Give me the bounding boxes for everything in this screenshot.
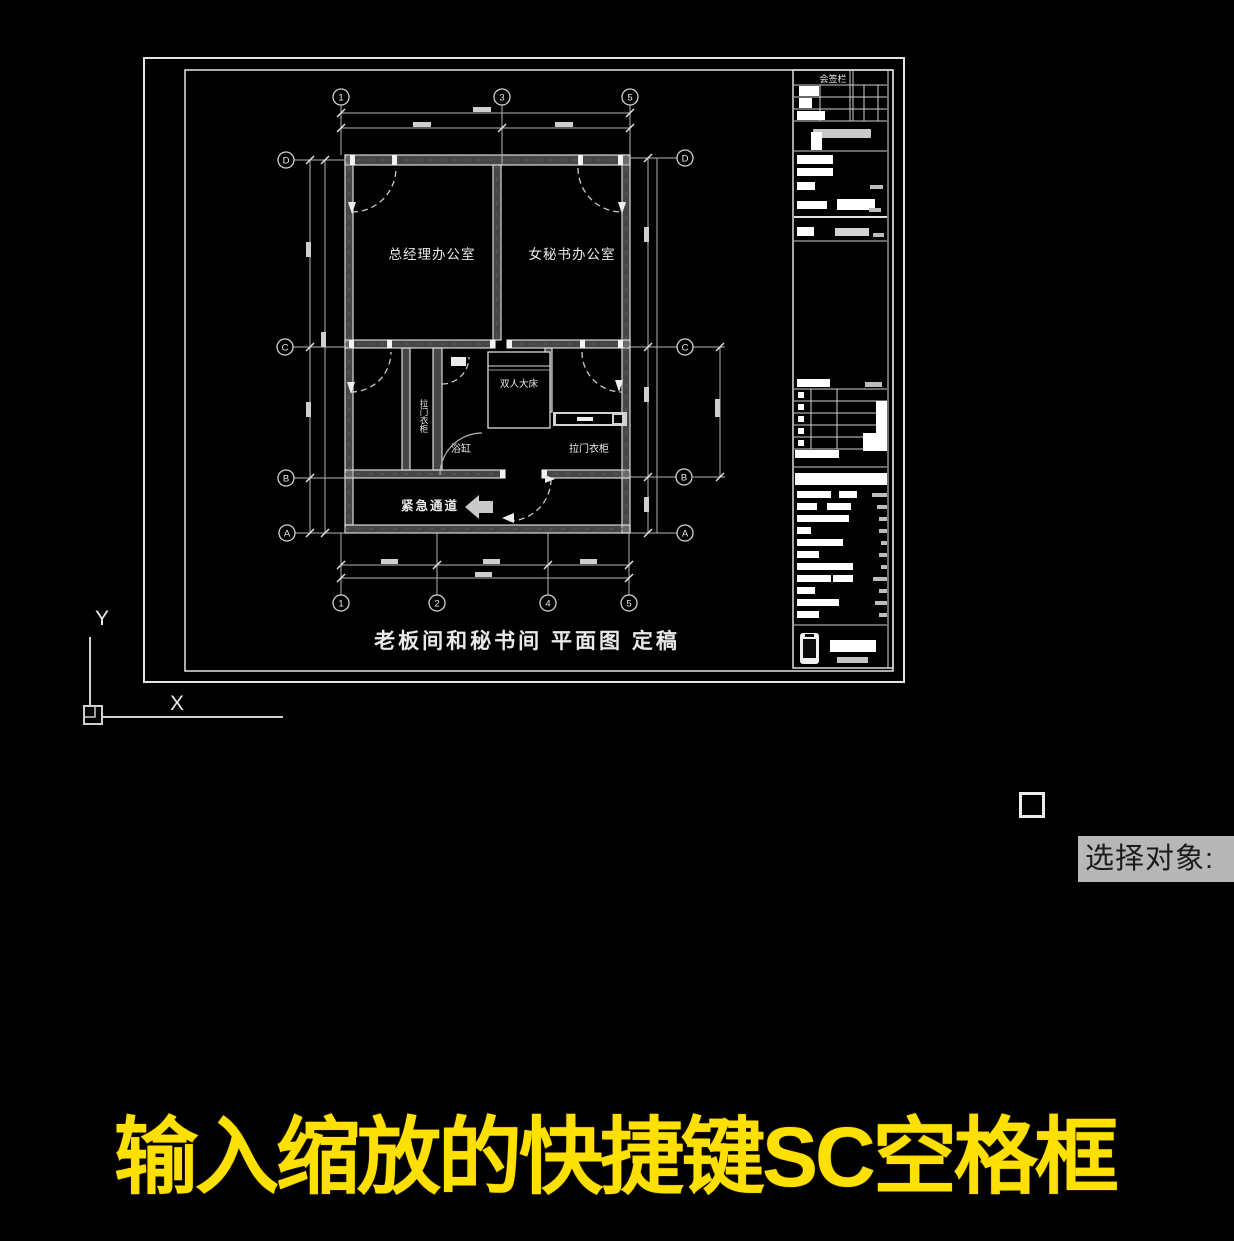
grid-bubble: B: [278, 470, 294, 486]
grid-bubble: A: [677, 525, 693, 541]
emergency-arrow-icon: [465, 495, 493, 519]
svg-text:D: D: [283, 156, 290, 167]
video-caption: 输入缩放的快捷键SC空格框: [114, 1090, 1116, 1211]
label-bathtub: 浴缸: [451, 442, 471, 455]
label-wardrobe-side: 拉门衣柜: [419, 398, 429, 434]
cad-viewport[interactable]: 会签栏: [0, 0, 1234, 1241]
grid-bubble: B: [676, 469, 692, 485]
label-emergency-passage: 紧急通道: [401, 498, 459, 513]
title-block: 会签栏: [793, 70, 893, 668]
grid-bubble: 2: [429, 595, 445, 611]
svg-text:5: 5: [627, 93, 632, 104]
grid-bubble: 1: [333, 89, 349, 105]
title-block-bars: [794, 86, 887, 389]
door-jamb-ticks: [349, 155, 623, 478]
svg-text:2: 2: [434, 599, 439, 610]
grid-bubble: 5: [622, 89, 638, 105]
svg-text:B: B: [283, 474, 289, 485]
label-wardrobe-right: 拉门衣柜: [569, 442, 609, 455]
qr-phone-icon: [800, 633, 876, 664]
ucs-x-label: X: [170, 692, 184, 715]
svg-text:1: 1: [338, 93, 343, 104]
svg-text:A: A: [284, 529, 291, 540]
grid-bubble: C: [277, 339, 293, 355]
grid-bubble: D: [677, 150, 693, 166]
svg-text:1: 1: [338, 599, 343, 610]
drawing-sheet[interactable]: 会签栏: [143, 57, 905, 684]
grid-bubble: 3: [494, 89, 510, 105]
svg-text:C: C: [682, 343, 689, 354]
svg-text:A: A: [682, 529, 689, 540]
signature-table-header: 会签栏: [819, 73, 846, 84]
bed-fixture: [488, 352, 550, 428]
ucs-icon: Y X: [75, 595, 305, 735]
wardrobe-fixture: [553, 412, 627, 426]
title-block-bars-2: [794, 392, 887, 625]
svg-text:3: 3: [499, 93, 504, 104]
command-prompt-tooltip: 选择对象:: [1078, 836, 1234, 882]
grid-bubble: 5: [621, 595, 637, 611]
room-label-gm-office: 总经理办公室: [389, 246, 476, 262]
grid-bubble: A: [279, 525, 295, 541]
svg-text:4: 4: [545, 599, 550, 610]
pickbox-cursor: [1019, 792, 1045, 818]
svg-text:D: D: [682, 154, 689, 165]
ucs-y-label: Y: [95, 607, 109, 630]
room-label-secretary-office: 女秘书办公室: [529, 246, 616, 262]
plan-title: 老板间和秘书间 平面图 定稿: [374, 629, 680, 653]
svg-text:5: 5: [626, 599, 631, 610]
svg-text:B: B: [681, 473, 687, 484]
grid-bubble: 1: [333, 595, 349, 611]
grid-bubble: 4: [540, 595, 556, 611]
label-double-bed: 双人大床: [500, 378, 539, 390]
grid-bubble: C: [677, 339, 693, 355]
grid-bubble: D: [278, 152, 294, 168]
svg-text:C: C: [282, 343, 289, 354]
